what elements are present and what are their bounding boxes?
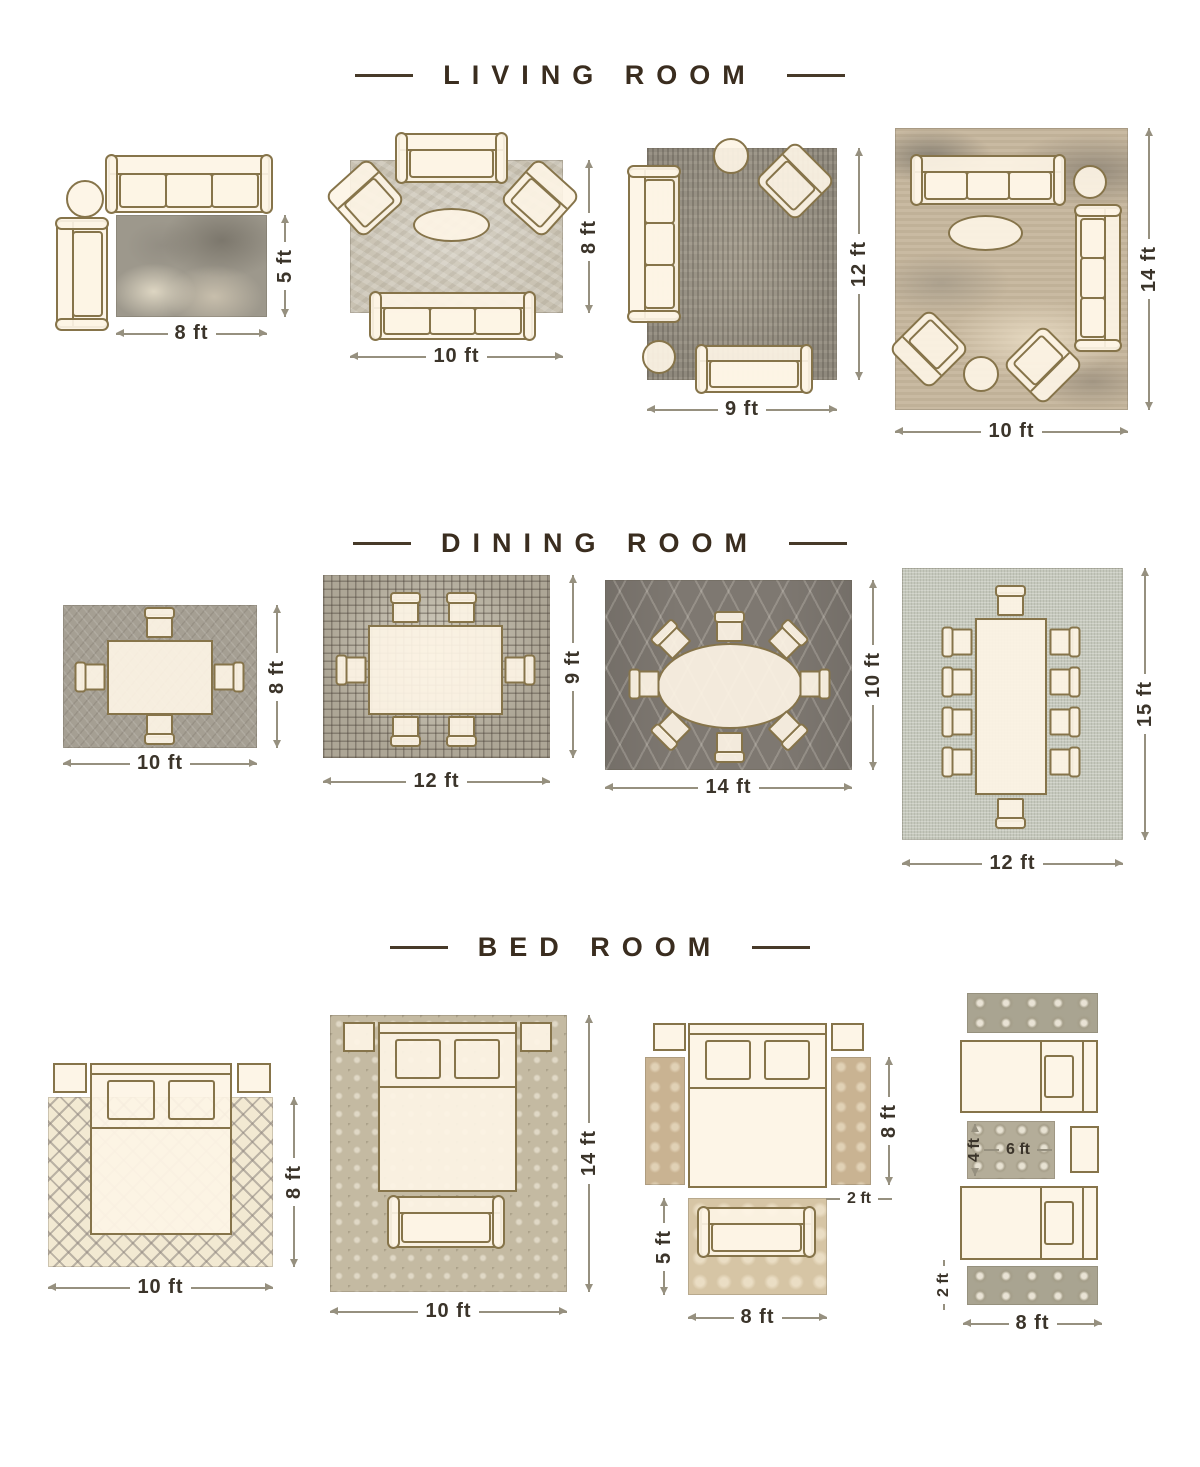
sofa-arm — [697, 1206, 710, 1258]
sofa-cushions — [1080, 218, 1106, 338]
dimension-height: 8 ft — [578, 160, 600, 313]
dining-chair — [343, 657, 367, 684]
dimension-height: 9 ft — [562, 575, 584, 758]
dimension-label: 14 ft — [578, 1123, 601, 1183]
sofa-arm — [627, 165, 681, 178]
dimension-label: 8 ft — [168, 322, 216, 345]
dining-chair — [146, 614, 173, 638]
dining-chair — [716, 618, 743, 642]
headboard — [690, 1025, 825, 1035]
dimension-label: 6 ft — [999, 1141, 1037, 1159]
pillow — [1044, 1201, 1074, 1245]
sofa — [372, 292, 533, 340]
sofa-cushions — [709, 360, 799, 388]
dimension-label: 12 ft — [406, 770, 466, 793]
dimension-height: 14 ft — [1138, 128, 1160, 410]
sofa-arm — [387, 1195, 400, 1249]
dimension-label: 10 ft — [426, 345, 486, 368]
round-side-table — [713, 138, 749, 174]
dining-chair — [949, 629, 973, 656]
nightstand — [237, 1063, 271, 1093]
runner-rug-8x2 — [967, 993, 1098, 1033]
dining-chair — [949, 709, 973, 736]
dimension-label: 8 ft — [266, 653, 289, 701]
title-dash — [353, 542, 411, 545]
dimension-height: 8 ft — [266, 605, 288, 748]
sofa — [913, 155, 1063, 205]
headboard — [92, 1065, 230, 1075]
dimension-mid-rug-height: 4 ft — [964, 1124, 986, 1176]
sofa — [628, 168, 680, 320]
headboard — [380, 1024, 515, 1034]
rug-8x5 — [116, 215, 267, 317]
sofa-arm — [1074, 204, 1122, 217]
section-title-text: DINING ROOM — [441, 528, 759, 559]
round-side-table — [1073, 165, 1107, 199]
dining-chair — [448, 599, 475, 623]
section-title-text: LIVING ROOM — [443, 60, 757, 91]
dining-chair — [82, 664, 106, 691]
dimension-label: 10 ft — [130, 752, 190, 775]
dining-chair — [997, 798, 1024, 822]
dimension-label: 12 ft — [982, 852, 1042, 875]
blanket — [690, 1087, 825, 1186]
dimension-foot-rug-height: 5 ft — [653, 1198, 675, 1295]
dimension-label: 8 ft — [578, 213, 601, 261]
pillows — [705, 1040, 810, 1080]
headboard — [1082, 1188, 1096, 1258]
oval-coffee-table — [948, 215, 1023, 251]
dimension-width: 9 ft — [647, 398, 837, 421]
bed — [90, 1063, 232, 1235]
title-dash — [355, 74, 413, 77]
blanket — [92, 1127, 230, 1233]
dining-chair — [949, 669, 973, 696]
dining-chair — [1050, 709, 1074, 736]
dining-chair — [997, 592, 1024, 616]
loveseat — [398, 133, 505, 183]
runner-rug-2x8 — [831, 1057, 871, 1185]
sofa-arm — [55, 217, 109, 230]
dimension-label: 9 ft — [718, 398, 766, 421]
sofa-cushions — [383, 307, 522, 335]
dimension-height: 10 ft — [862, 580, 884, 770]
nightstand — [1070, 1126, 1099, 1173]
sofa-cushions — [409, 149, 494, 178]
dimension-label: 2 ft — [935, 1266, 953, 1304]
sofa-arm — [492, 1195, 505, 1249]
rug-size-guide: LIVING ROOM 5 ft 8 ft 8 ft 10 — [0, 0, 1200, 1467]
sofa-cushions — [72, 231, 103, 317]
dimension-label: 4 ft — [966, 1131, 984, 1169]
dimension-label: 2 ft — [840, 1190, 878, 1208]
sofa-cushions — [711, 1223, 802, 1252]
sofa — [1075, 207, 1121, 349]
sofa-cushions — [401, 1212, 491, 1243]
runner-rug-8x2 — [967, 1266, 1098, 1305]
section-title-text: BED ROOM — [478, 932, 723, 963]
twin-bed — [960, 1040, 1098, 1113]
dimension-label: 5 ft — [653, 1223, 676, 1271]
dining-chair — [448, 716, 475, 740]
dimension-bottom-width: 8 ft — [963, 1312, 1102, 1335]
dimension-width: 14 ft — [605, 776, 852, 799]
dimension-label: 8 ft — [878, 1097, 901, 1145]
loveseat — [698, 345, 810, 393]
dining-chair — [1050, 669, 1074, 696]
loveseat — [700, 1207, 813, 1257]
dining-chair — [949, 749, 973, 776]
dimension-label: 10 ft — [981, 420, 1041, 443]
dimension-runner-length: 8 ft — [878, 1057, 900, 1185]
dimension-width: 8 ft — [116, 322, 267, 345]
nightstand — [343, 1022, 375, 1052]
pillow — [1044, 1055, 1074, 1098]
section-title-bed-room: BED ROOM — [0, 932, 1200, 963]
dimension-runner-width: 2 ft — [826, 1190, 892, 1208]
dining-table — [975, 618, 1047, 795]
title-dash — [787, 74, 845, 77]
sofa-cushions — [119, 173, 259, 208]
dining-chair — [1050, 629, 1074, 656]
dimension-width: 12 ft — [323, 770, 550, 793]
sofa — [108, 155, 270, 213]
dimension-label: 8 ft — [734, 1306, 782, 1329]
title-dash — [390, 946, 448, 949]
blanket — [380, 1086, 515, 1190]
loveseat — [56, 220, 108, 328]
dimension-height: 5 ft — [274, 215, 296, 317]
sofa-arm — [803, 1206, 816, 1258]
dimension-label: 8 ft — [283, 1158, 306, 1206]
dimension-width: 10 ft — [330, 1300, 567, 1323]
twin-bed — [960, 1186, 1098, 1260]
sofa-arm — [55, 318, 109, 331]
dimension-height: 12 ft — [848, 148, 870, 380]
dimension-height: 15 ft — [1134, 568, 1156, 840]
dining-chair — [214, 664, 238, 691]
dining-chair — [716, 732, 743, 756]
oval-coffee-table — [413, 208, 490, 242]
dimension-label: 8 ft — [1009, 1312, 1057, 1335]
dining-chair — [636, 671, 660, 698]
dining-chair — [1050, 749, 1074, 776]
dimension-label: 10 ft — [862, 645, 885, 705]
dimension-width: 12 ft — [902, 852, 1123, 875]
dimension-width: 10 ft — [63, 752, 257, 775]
pillows — [107, 1080, 215, 1120]
dimension-label: 5 ft — [274, 242, 297, 290]
sofa-arm — [369, 291, 382, 341]
dimension-height: 14 ft — [578, 1015, 600, 1292]
dimension-mid-rug-width: 6 ft — [984, 1141, 1052, 1159]
runner-rug-2x8 — [645, 1057, 685, 1185]
bed — [688, 1023, 827, 1188]
round-side-table — [642, 340, 676, 374]
bed-separator — [1040, 1188, 1042, 1258]
dimension-height: 8 ft — [283, 1097, 305, 1267]
bed — [378, 1022, 517, 1192]
nightstand — [831, 1023, 864, 1051]
nightstand — [53, 1063, 87, 1093]
sofa-back — [1104, 209, 1119, 347]
dimension-label: 14 ft — [698, 776, 758, 799]
sofa-arm — [523, 291, 536, 341]
dimension-label: 15 ft — [1134, 674, 1157, 734]
title-dash — [789, 542, 847, 545]
dimension-label: 9 ft — [562, 643, 585, 691]
dining-chair — [800, 671, 824, 698]
sofa-arm — [627, 310, 681, 323]
sofa-arm — [695, 344, 708, 394]
sofa-arm — [1074, 339, 1122, 352]
dining-table — [368, 625, 503, 715]
sofa-cushions — [644, 179, 675, 309]
dining-table — [107, 640, 213, 715]
dimension-width: 10 ft — [895, 420, 1128, 443]
dimension-width: 10 ft — [350, 345, 563, 368]
dining-chair — [392, 599, 419, 623]
sofa-cushions — [924, 171, 1052, 200]
sofa-arm — [395, 132, 408, 184]
dimension-label: 14 ft — [1138, 239, 1161, 299]
round-side-table — [963, 356, 999, 392]
foot-bench — [390, 1196, 502, 1248]
round-side-table — [66, 180, 104, 218]
pillows — [395, 1039, 500, 1079]
dining-chair — [146, 714, 173, 738]
sofa-arm — [800, 344, 813, 394]
dimension-foot-rug-width: 8 ft — [688, 1306, 827, 1329]
nightstand — [520, 1022, 552, 1052]
dimension-width: 10 ft — [48, 1276, 273, 1299]
section-title-living-room: LIVING ROOM — [0, 60, 1200, 91]
dining-chair — [392, 716, 419, 740]
sofa-arm — [910, 154, 923, 206]
section-title-dining-room: DINING ROOM — [0, 528, 1200, 559]
sofa-arm — [495, 132, 508, 184]
sofa-arm — [105, 154, 118, 214]
nightstand — [653, 1023, 686, 1051]
headboard — [1082, 1042, 1096, 1111]
title-dash — [752, 946, 810, 949]
bed-separator — [1040, 1042, 1042, 1111]
dining-chair — [505, 657, 529, 684]
dimension-label: 12 ft — [848, 234, 871, 294]
dimension-label: 10 ft — [418, 1300, 478, 1323]
sofa-arm — [260, 154, 273, 214]
dimension-label: 10 ft — [130, 1276, 190, 1299]
dimension-runner-height: 2 ft — [933, 1260, 955, 1310]
sofa-arm — [1053, 154, 1066, 206]
